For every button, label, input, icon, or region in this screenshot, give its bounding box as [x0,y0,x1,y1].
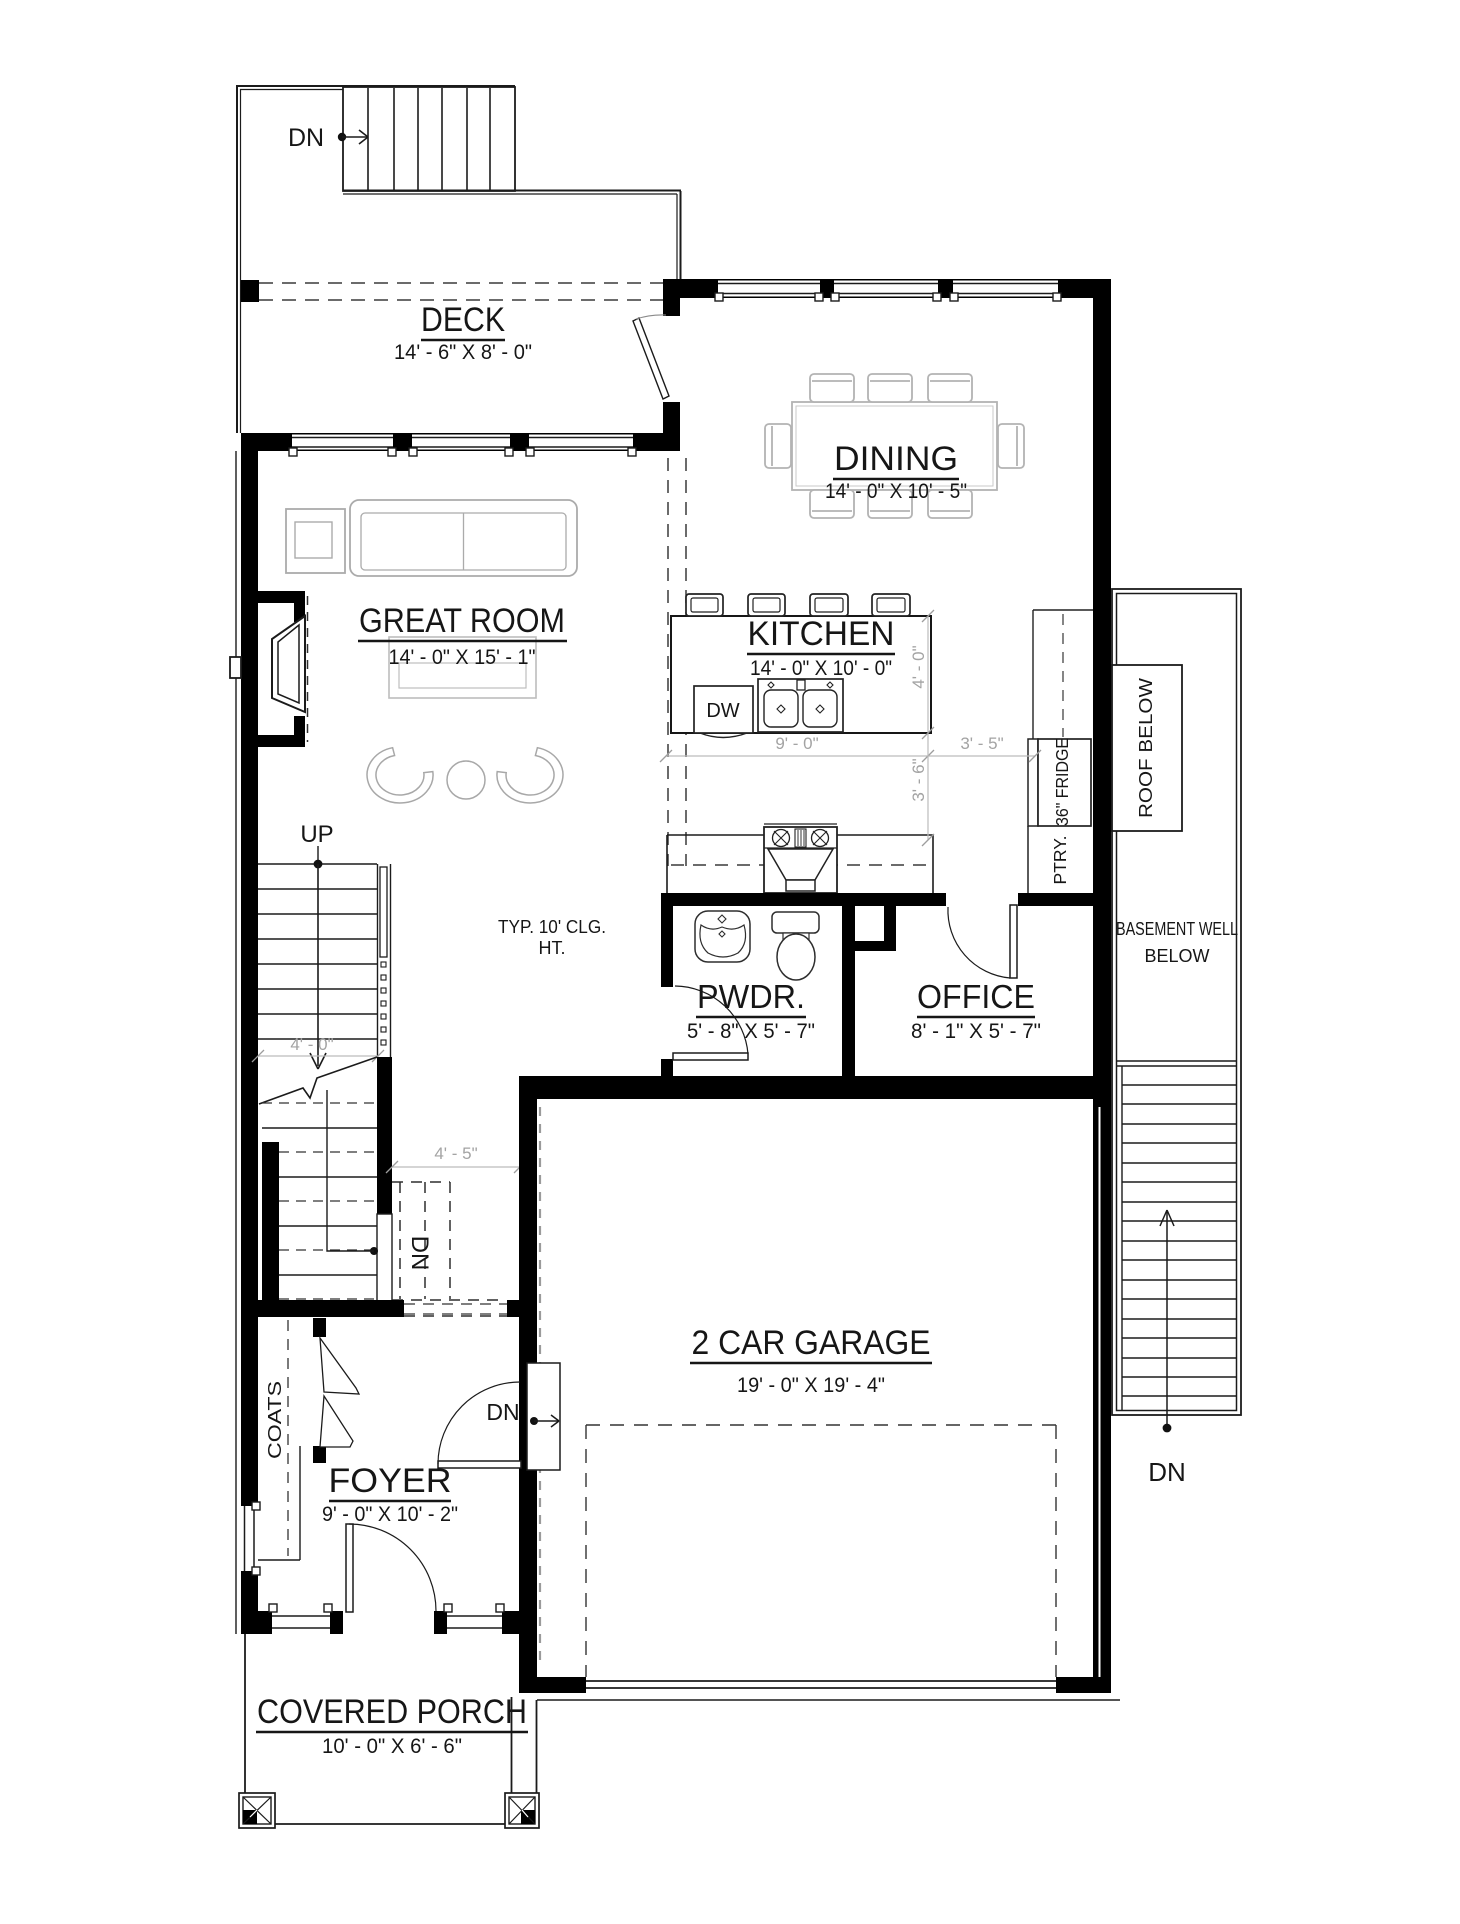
svg-text:3' - 6": 3' - 6" [909,758,928,801]
svg-text:4' - 0": 4' - 0" [290,1035,333,1054]
svg-text:8' - 1" X 5' - 7": 8' - 1" X 5' - 7" [911,1020,1041,1043]
svg-text:PWDR.: PWDR. [697,978,805,1015]
svg-text:DW: DW [706,700,739,722]
svg-text:KITCHEN: KITCHEN [748,615,895,653]
svg-text:COVERED PORCH: COVERED PORCH [257,1693,527,1731]
svg-text:14' - 0" X 15' - 1": 14' - 0" X 15' - 1" [389,646,536,669]
svg-text:FOYER: FOYER [329,1462,452,1500]
svg-text:10' - 0" X 6' - 6": 10' - 0" X 6' - 6" [322,1735,462,1758]
svg-text:GREAT ROOM: GREAT ROOM [359,602,565,640]
svg-text:19' - 0" X 19' - 4": 19' - 0" X 19' - 4" [737,1374,885,1397]
svg-text:BASEMENT WELL: BASEMENT WELL [1116,919,1238,939]
svg-text:9' - 0" X 10' - 2": 9' - 0" X 10' - 2" [322,1503,458,1526]
svg-text:OFFICE: OFFICE [917,978,1035,1015]
svg-text:DN: DN [486,1399,519,1425]
svg-text:36" FRIDGE: 36" FRIDGE [1052,738,1072,826]
svg-text:DN: DN [1148,1457,1186,1487]
svg-text:COATS: COATS [265,1381,285,1459]
svg-text:9' - 0": 9' - 0" [775,734,818,753]
svg-text:TYP. 10' CLG.: TYP. 10' CLG. [498,917,606,937]
svg-text:HT.: HT. [539,938,566,958]
svg-text:4' - 5": 4' - 5" [434,1144,477,1163]
svg-text:ROOF BELOW: ROOF BELOW [1136,678,1156,818]
svg-text:DINING: DINING [834,440,958,478]
svg-text:BELOW: BELOW [1144,946,1209,966]
svg-text:DN: DN [406,1236,433,1271]
svg-text:PTRY.: PTRY. [1050,836,1070,885]
svg-text:5' - 8" X 5' - 7": 5' - 8" X 5' - 7" [687,1020,815,1043]
svg-text:14' - 0" X 10' - 5": 14' - 0" X 10' - 5" [825,480,967,503]
svg-text:UP: UP [300,821,333,848]
svg-text:3' - 5": 3' - 5" [960,734,1003,753]
svg-text:DN: DN [288,124,324,152]
svg-text:4' - 0": 4' - 0" [909,645,928,688]
svg-text:DECK: DECK [421,301,505,339]
svg-text:2 CAR GARAGE: 2 CAR GARAGE [692,1324,931,1362]
svg-text:14' - 6" X 8' - 0": 14' - 6" X 8' - 0" [394,341,532,364]
svg-text:14' - 0" X 10' - 0": 14' - 0" X 10' - 0" [750,657,892,680]
